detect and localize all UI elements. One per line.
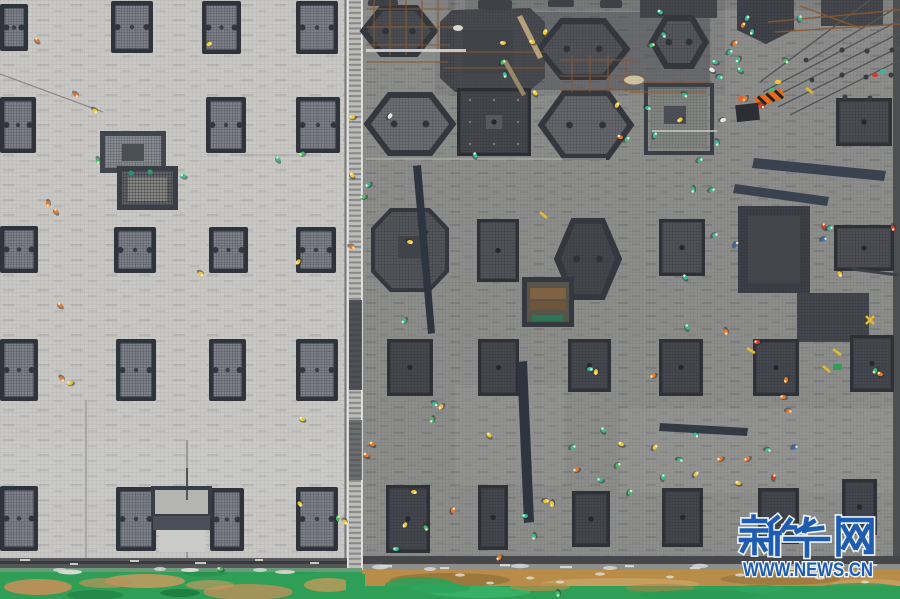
svg-text:WWW.NEWS.CN: WWW.NEWS.CN [743, 559, 873, 581]
